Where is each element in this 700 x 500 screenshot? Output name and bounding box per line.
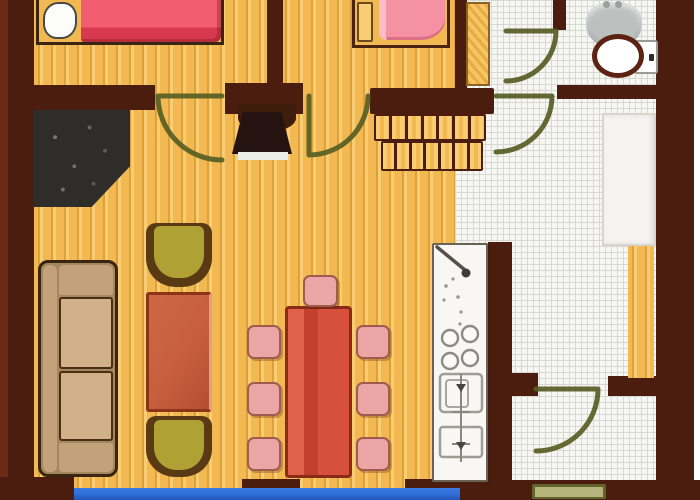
stair-step	[470, 143, 481, 169]
sofa	[38, 260, 118, 477]
armchair-top	[146, 223, 212, 287]
dining-chair-head	[303, 275, 338, 307]
wall-bottom-left	[0, 477, 74, 500]
wall-bedroom1-bottom	[30, 85, 155, 110]
stair-step	[376, 116, 389, 139]
toilet-bowl	[592, 34, 644, 78]
sofa-armrest-bottom	[59, 443, 113, 472]
stair-step	[441, 143, 452, 169]
pillow	[43, 2, 77, 39]
dining-chair-left	[247, 437, 281, 471]
stair-step	[412, 143, 423, 169]
stair-step	[471, 116, 484, 139]
basin-tap	[615, 1, 622, 8]
wall-left-outer	[0, 0, 34, 500]
wall-bathroom-bottom	[557, 85, 656, 99]
sofa-cushion	[59, 371, 113, 441]
wall-entry-left-seg	[512, 373, 538, 396]
stair-step	[455, 143, 466, 169]
wood-strip-right	[628, 246, 654, 378]
floor-plan	[0, 0, 700, 500]
entry-doormat	[532, 484, 606, 499]
single-bed	[352, 0, 450, 48]
staircase-upper-steps	[374, 114, 486, 141]
sofa-backrest	[43, 265, 57, 472]
basin-tap	[603, 1, 610, 8]
sofa-cushion	[59, 297, 113, 369]
bedside-cabinet	[357, 2, 373, 42]
bed-mattress	[81, 0, 221, 42]
dining-chair-right	[356, 437, 390, 471]
tv-screen	[238, 152, 288, 160]
wall-entry-right-seg	[608, 376, 656, 396]
wall-bathroom-divider	[553, 0, 566, 30]
kitchen-counter	[432, 243, 488, 482]
stair-step	[408, 116, 421, 139]
stair-step	[439, 116, 452, 139]
terrace-water-edge	[74, 488, 460, 500]
white-wardrobe	[602, 113, 656, 246]
armchair-seat	[154, 420, 204, 470]
dining-table	[285, 306, 352, 478]
dining-chair-right	[356, 382, 390, 416]
double-bed	[36, 0, 224, 45]
wall-right-outer	[656, 0, 694, 500]
stair-step	[424, 116, 437, 139]
wall-kitchen-left	[488, 242, 512, 482]
dining-chair-right	[356, 325, 390, 359]
armchair-bottom	[146, 416, 212, 477]
dining-chair-left	[247, 325, 281, 359]
coffee-table	[146, 292, 212, 412]
wall-stair-landing	[370, 88, 494, 114]
stair-step	[426, 143, 437, 169]
dining-chair-left	[247, 382, 281, 416]
stair-step	[392, 116, 405, 139]
toilet-flush-button	[649, 54, 654, 61]
stair-step	[455, 116, 468, 139]
hall-closet	[466, 2, 490, 86]
stair-step	[383, 143, 394, 169]
bed2-blanket	[379, 0, 445, 40]
sofa-armrest-top	[59, 265, 113, 295]
armchair-seat	[154, 226, 204, 278]
stair-step	[397, 143, 408, 169]
staircase-lower-steps	[381, 141, 483, 171]
wall-bedroom-divider	[267, 0, 283, 88]
